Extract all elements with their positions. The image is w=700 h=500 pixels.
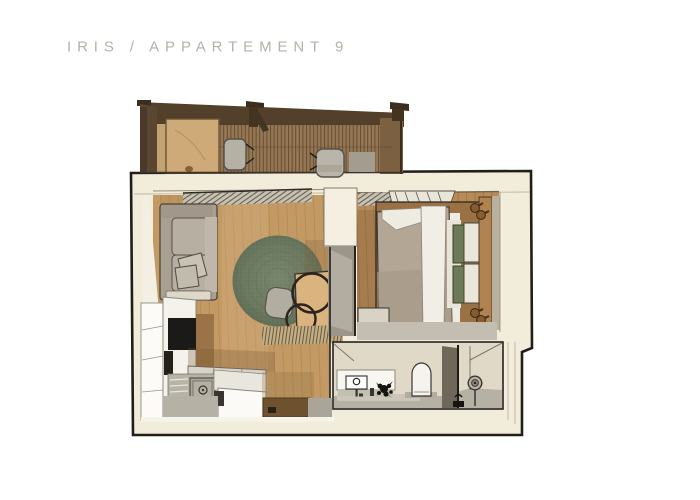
svg-text:IRIS / APPARTEMENT 9: IRIS / APPARTEMENT 9 bbox=[67, 39, 349, 56]
